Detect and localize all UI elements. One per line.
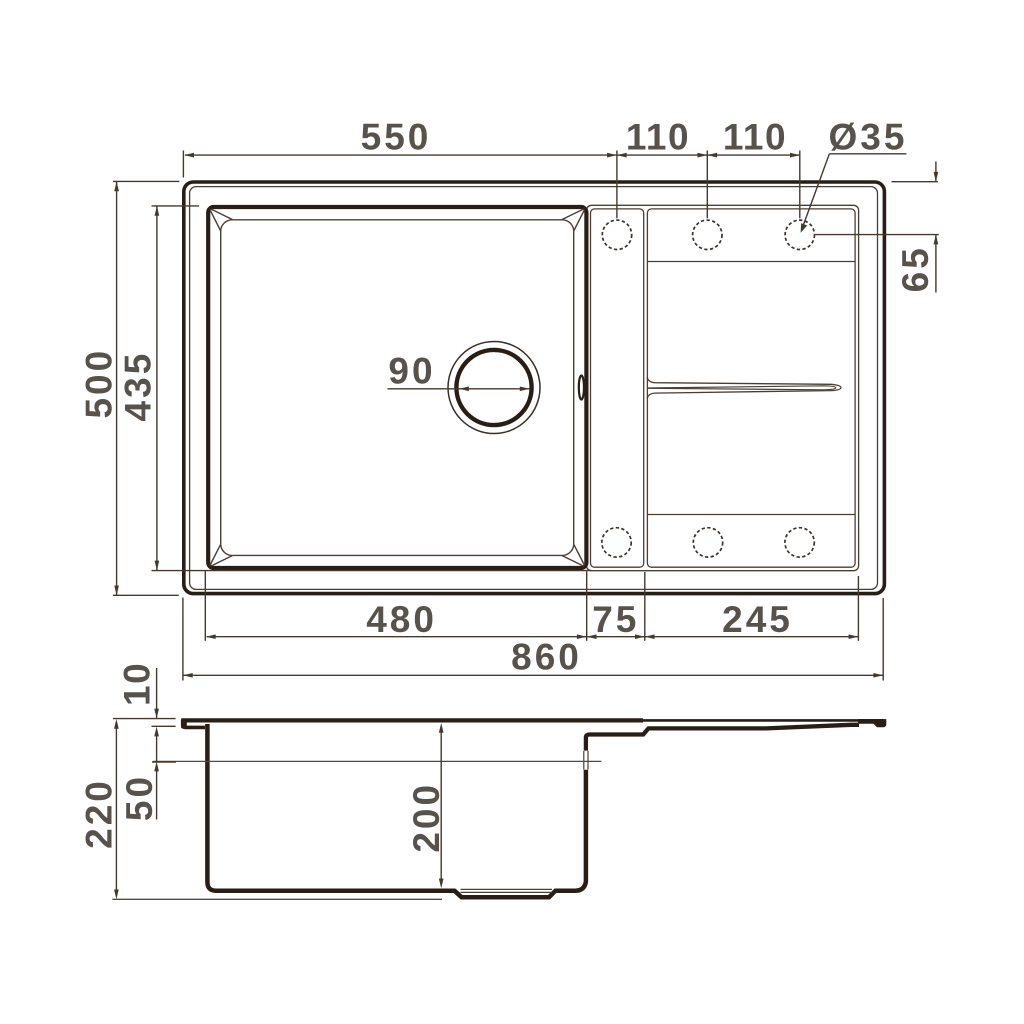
- svg-text:Ø35: Ø35: [829, 116, 908, 157]
- svg-text:110: 110: [626, 116, 690, 157]
- svg-text:10: 10: [117, 662, 158, 706]
- svg-text:480: 480: [366, 599, 437, 640]
- svg-text:50: 50: [119, 774, 160, 821]
- svg-text:75: 75: [592, 599, 639, 640]
- svg-text:110: 110: [723, 116, 787, 157]
- svg-text:860: 860: [511, 636, 582, 677]
- svg-text:500: 500: [78, 348, 119, 419]
- svg-text:220: 220: [79, 778, 120, 849]
- svg-text:65: 65: [895, 245, 936, 292]
- svg-text:550: 550: [361, 116, 432, 157]
- svg-text:200: 200: [406, 782, 447, 853]
- svg-text:90: 90: [388, 350, 435, 391]
- svg-text:245: 245: [722, 599, 793, 640]
- svg-text:435: 435: [118, 351, 159, 422]
